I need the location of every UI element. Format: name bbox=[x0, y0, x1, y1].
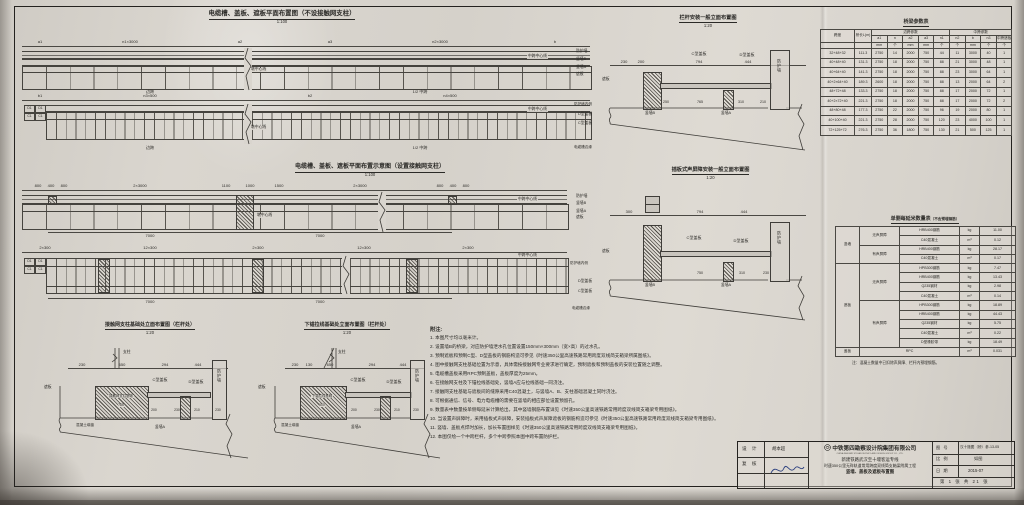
param-value: 14 bbox=[887, 49, 903, 59]
shield-label: 遮板 bbox=[44, 386, 52, 390]
note-item: 7. 接触网支柱基础与遮板间的缝隙采用C40混凝土，与竖墙A、B、支柱基础混凝土… bbox=[430, 388, 960, 397]
qty-row: 有声屏障HPB300钢筋kg18.89 bbox=[836, 301, 1016, 310]
dim-label: 2×3000 bbox=[133, 184, 146, 188]
reviewer-signature bbox=[768, 459, 806, 483]
date-label: 日 期 bbox=[936, 469, 949, 473]
param-value: 2000 bbox=[903, 68, 919, 78]
param-row: 40+2×72+40221.3275018200075088172000722 bbox=[821, 97, 1012, 107]
dim-label: 1100 bbox=[222, 184, 231, 188]
dim-label: 785 bbox=[118, 404, 124, 407]
param-value: 18 bbox=[887, 68, 903, 78]
side-label-wall-b: 竖墙B bbox=[576, 58, 586, 62]
qty-unit: m³ bbox=[960, 292, 980, 301]
param-value: 48+80+48 bbox=[821, 106, 855, 116]
cover-c-label: C型盖板 bbox=[687, 236, 702, 240]
dimension-line bbox=[22, 100, 590, 101]
plan-mid-scale: 1:100 bbox=[240, 173, 500, 177]
param-value: 750 bbox=[918, 68, 934, 78]
param-value: 2750 bbox=[872, 106, 888, 116]
dim-label: 130 bbox=[306, 363, 313, 367]
plan-top-scale: 1:100 bbox=[172, 20, 392, 24]
param-value: 40+100+40 bbox=[821, 116, 855, 126]
dim-label: 230 bbox=[79, 363, 86, 367]
param-value: 500 bbox=[965, 125, 981, 135]
dimension-line bbox=[22, 190, 567, 191]
post-foundation-hatch bbox=[48, 196, 57, 205]
param-value: 750 bbox=[918, 125, 934, 135]
param-value: 1800 bbox=[903, 125, 919, 135]
note-item: 8. 可根据通信、信号、电力电缆槽的需要在竖墙的相应部位设置预留孔。 bbox=[430, 397, 960, 406]
dim-label: 650 bbox=[119, 363, 126, 367]
param-value: 88 bbox=[934, 68, 950, 78]
dim-label: 230 bbox=[413, 409, 419, 412]
param-value: 750 bbox=[918, 116, 934, 126]
param-value: 189.3 bbox=[855, 77, 872, 87]
qty-unit: kg bbox=[960, 227, 980, 236]
qty-unit: kg bbox=[960, 245, 980, 254]
param-value: 48+72+48 bbox=[821, 87, 855, 97]
dim-label: 200 bbox=[351, 409, 357, 412]
qty-value: 28.17 bbox=[980, 245, 1016, 254]
dim-label: 230 bbox=[621, 60, 628, 64]
param-value: 2 bbox=[996, 97, 1012, 107]
foundation-label: 接触网支柱基础 bbox=[108, 395, 134, 398]
dim-label: 2×300 bbox=[39, 246, 50, 250]
qty-unit: kg bbox=[960, 310, 980, 319]
wall-a-label: 竖墙A bbox=[351, 426, 361, 430]
plate-type-cells: D1 D1 C1 C1 bbox=[24, 258, 46, 274]
pier-centerline-label: 墩中心线 bbox=[250, 68, 267, 72]
param-value: 2000 bbox=[965, 77, 981, 87]
post-foundation-hatch bbox=[98, 259, 110, 293]
param-value: 750 bbox=[918, 106, 934, 116]
title-block-divider bbox=[932, 454, 1014, 455]
side-label-guardwall-inner: 防护墙内侧 bbox=[574, 103, 592, 107]
qty-unit: kg bbox=[960, 282, 980, 291]
param-value: 2750 bbox=[872, 49, 888, 59]
dim-label: 230 bbox=[763, 272, 769, 276]
elev2-title: 插板式声屏障安装一般立面布置图 bbox=[618, 167, 803, 175]
side-label-trough-edge: 电缆槽边缘 bbox=[574, 146, 592, 150]
param-value: 2750 bbox=[872, 68, 888, 78]
param-value: 17 bbox=[950, 97, 966, 107]
param-value: 2000 bbox=[903, 106, 919, 116]
param-value: 750 bbox=[918, 77, 934, 87]
param-value: 19 bbox=[950, 106, 966, 116]
note-item: 1. 本图尺寸均以毫米计。 bbox=[430, 334, 960, 343]
dim-label: a3 bbox=[328, 40, 332, 44]
plate-cell: D1 bbox=[24, 258, 35, 266]
param-value: 133.3 bbox=[855, 87, 872, 97]
qty-material: C40混凝土 bbox=[900, 292, 960, 301]
shield-label: 遮板 bbox=[602, 78, 610, 82]
cover-d-label: D型盖板 bbox=[189, 380, 204, 384]
param-value: 22 bbox=[887, 106, 903, 116]
param-value: 2750 bbox=[872, 125, 888, 135]
param-value: 88 bbox=[934, 77, 950, 87]
param-value: 72 bbox=[981, 97, 997, 107]
param-value: 13 bbox=[950, 77, 966, 87]
param-value: 1 bbox=[996, 106, 1012, 116]
param-value: 2600 bbox=[872, 77, 888, 87]
param-value: 2000 bbox=[903, 87, 919, 97]
wall-a-hatch bbox=[380, 396, 391, 420]
dim-label: b bbox=[554, 40, 556, 44]
qty-material: HRB400钢筋 bbox=[900, 310, 960, 319]
param-value: 88 bbox=[934, 87, 950, 97]
dimension-line bbox=[22, 46, 590, 47]
param-value: 36 bbox=[887, 125, 903, 135]
param-value: 2000 bbox=[965, 106, 981, 116]
pier-centerline-label: 墩中心线 bbox=[256, 214, 273, 218]
cover-plate-band bbox=[22, 66, 592, 90]
qty-unit: m³ bbox=[960, 347, 980, 356]
dim-label: 2×3000 bbox=[353, 184, 366, 188]
param-value: 4000 bbox=[965, 116, 981, 126]
qty-material: Q235钢材 bbox=[900, 282, 960, 291]
qty-value: 0.14 bbox=[980, 292, 1016, 301]
shield-plate bbox=[660, 83, 772, 89]
dim-label: 7000 bbox=[316, 234, 325, 238]
note-item: 9. 数量表中数量按单侧每延米计算给出，其中竖墙钢筋布置详见《时速350公里高速… bbox=[430, 406, 960, 415]
break-symbol bbox=[342, 256, 350, 294]
param-value: 1 bbox=[996, 116, 1012, 126]
param-value: 11 bbox=[950, 49, 966, 59]
cover-d-label: D型盖板 bbox=[387, 380, 402, 384]
param-value: 120 bbox=[934, 116, 950, 126]
notes-block: 附注: 1. 本图尺寸均以毫米计。2. 设置墙B的桥梁，对应防护墙泄水孔位置设置… bbox=[430, 327, 960, 442]
detail1-scale: 1:20 bbox=[60, 331, 240, 335]
param-value: 1 bbox=[996, 125, 1012, 135]
span-label-side: 边跨 bbox=[146, 146, 154, 150]
plate-cell: C1 bbox=[35, 113, 46, 121]
param-value: 40+48+40 bbox=[821, 58, 855, 68]
param-value: 131.3 bbox=[855, 58, 872, 68]
bridge-parameter-table: 跨度桥长L(m)边跨参数中跨参数a1na2a3n1n2bn3中跨遮板mm个mmm… bbox=[820, 29, 1012, 136]
dim-label: 310 bbox=[738, 101, 744, 105]
plan-strip-mid-2: 2×300 12×300 2×300 12×300 2×300 D1 D1 C1… bbox=[22, 248, 567, 312]
qty-category: 无声屏障 bbox=[860, 264, 900, 301]
guardwall-label: 防护墙 bbox=[777, 231, 781, 245]
param-col-length: 桥长L(m) bbox=[855, 30, 872, 43]
break-symbol bbox=[378, 192, 386, 232]
dimension-line bbox=[48, 298, 452, 299]
qty-value: 44.43 bbox=[980, 310, 1016, 319]
dim-label: 800 bbox=[437, 184, 444, 188]
param-value: 750 bbox=[918, 97, 934, 107]
dim-label: n2×3000 bbox=[432, 40, 448, 44]
qty-unit: m³ bbox=[960, 236, 980, 245]
param-value: 17 bbox=[950, 87, 966, 97]
side-label-guardwall-inner: 防护墙内侧 bbox=[570, 262, 588, 266]
qty-unit: m³ bbox=[960, 329, 980, 338]
qty-part: 竖墙 bbox=[836, 227, 860, 264]
param-value: 21 bbox=[950, 58, 966, 68]
param-value: 18 bbox=[887, 97, 903, 107]
sheet-count: 第 1 张 共 21 张 bbox=[940, 480, 989, 484]
break-symbol bbox=[244, 104, 252, 144]
qty-material: HRB400钢筋 bbox=[900, 273, 960, 282]
param-value: 64 bbox=[981, 77, 997, 87]
side-label-guardwall: 防护墙 bbox=[576, 195, 587, 199]
wall-band bbox=[46, 105, 590, 112]
dim-label: 800 bbox=[35, 184, 42, 188]
dim-label: 200 bbox=[638, 60, 645, 64]
dim-label: 794 bbox=[696, 60, 703, 64]
company-name-en: CHINA RAILWAY SIYUAN SURVEY AND DESIGN G… bbox=[816, 452, 924, 455]
dim-label: 210 bbox=[394, 409, 400, 412]
band-split-line bbox=[23, 211, 568, 212]
cover-c-label: C型盖板 bbox=[153, 378, 168, 382]
guardwall-box: 防护墙 bbox=[770, 50, 790, 110]
param-value: 2750 bbox=[872, 87, 888, 97]
param-row: 48+72+48133.3275018200075088172000721 bbox=[821, 87, 1012, 97]
param-value: 221.3 bbox=[855, 116, 872, 126]
wall-a-hatch bbox=[723, 262, 734, 282]
param-value: 21 bbox=[950, 125, 966, 135]
title-block-divider bbox=[958, 442, 959, 477]
dimension-line bbox=[48, 232, 452, 233]
qty-value: 18.89 bbox=[980, 301, 1016, 310]
qty-unit: kg bbox=[960, 301, 980, 310]
param-value: 64 bbox=[981, 68, 997, 78]
side-label-plate-c: C型盖板 bbox=[578, 122, 592, 126]
param-value: 23 bbox=[950, 68, 966, 78]
param-value: 111.3 bbox=[855, 49, 872, 59]
dim-label: n1×3000 bbox=[122, 40, 138, 44]
side-label-shield: 遮板 bbox=[576, 73, 584, 77]
title-block: 设 计 复 核 胡本超 中铁第四勘察设计院集团有限公司 CHINA RAILWA… bbox=[737, 441, 1015, 489]
cover-d-label: D型盖板 bbox=[740, 53, 755, 57]
midspan-centerline-label: 中跨中心线 bbox=[517, 254, 538, 258]
post-foundation-hatch bbox=[252, 259, 264, 293]
param-value: 2750 bbox=[872, 97, 888, 107]
band-split-line bbox=[47, 266, 568, 267]
company-name: 中铁第四勘察设计院集团有限公司 bbox=[832, 446, 916, 452]
date-value: 2015-07 bbox=[968, 469, 983, 473]
detail1-title: 接触网支柱基础处立面布置图（栏杆处） bbox=[60, 322, 240, 330]
qty-row: 有声屏障HRB400钢筋kg28.17 bbox=[836, 245, 1016, 254]
cover-c-label: C型盖板 bbox=[351, 378, 366, 382]
param-value: 88 bbox=[934, 97, 950, 107]
qty-table-title-suffix: （不含预埋钢筋） bbox=[931, 217, 960, 221]
param-row: 72+125+72276.32750361800750130215001251 bbox=[821, 125, 1012, 135]
guardwall-band bbox=[22, 51, 590, 59]
qty-value: 11.00 bbox=[980, 227, 1016, 236]
param-value: 44 bbox=[934, 49, 950, 59]
param-value: 2000 bbox=[965, 97, 981, 107]
band-split-line bbox=[23, 72, 591, 73]
qty-unit: kg bbox=[960, 338, 980, 347]
dim-label: 230 bbox=[174, 409, 180, 412]
qty-value: 5.75 bbox=[980, 319, 1016, 328]
param-value: 141.3 bbox=[855, 68, 872, 78]
param-value: 1 bbox=[996, 87, 1012, 97]
dim-label: 750 bbox=[697, 272, 703, 276]
side-label-plate-d: D型盖板 bbox=[578, 280, 592, 284]
param-row: 40+100+40221.327502820007501202340001001 bbox=[821, 116, 1012, 126]
param-value: 750 bbox=[918, 49, 934, 59]
dim-label: 7000 bbox=[316, 300, 325, 304]
dim-label: 765 bbox=[697, 101, 703, 105]
param-value: 3000 bbox=[965, 49, 981, 59]
title-block-divider bbox=[932, 477, 1014, 478]
qty-category: 无声屏障 bbox=[860, 227, 900, 246]
dim-label: 2×300 bbox=[252, 246, 263, 250]
dim-label: 444 bbox=[400, 363, 407, 367]
sheet-title: 竖墙、盖板及遮板布置图 bbox=[810, 469, 930, 475]
dim-label: 210 bbox=[760, 101, 766, 105]
param-value: 3000 bbox=[965, 58, 981, 68]
plate-cell: D1 bbox=[24, 105, 35, 113]
param-value: 2000 bbox=[965, 87, 981, 97]
side-label-wall-a: 竖墙A bbox=[576, 66, 586, 70]
cable-trough-band bbox=[46, 258, 569, 294]
wall-a-label: 竖墙A bbox=[721, 284, 731, 288]
qty-value: 2.98 bbox=[980, 282, 1016, 291]
dim-label: 2×300 bbox=[462, 246, 473, 250]
cover-plate-band bbox=[22, 204, 569, 230]
cover-c-label: C型盖板 bbox=[692, 52, 707, 56]
dimension-line bbox=[22, 252, 567, 253]
side-label-shield: 遮板 bbox=[576, 216, 584, 220]
param-value: 40+2×72+40 bbox=[821, 97, 855, 107]
guardwall-box: 防护墙 bbox=[770, 222, 790, 282]
note-item: 3. 预制遮板和预制C型、D型盖板的钢筋构造可参见《时速350公里高速铁路常用跨… bbox=[430, 352, 960, 361]
band-split-line bbox=[47, 119, 591, 120]
param-value: 48 bbox=[981, 58, 997, 68]
project-line2: 时速350公里无砟轨道常用跨度双线简支箱梁附属工程 bbox=[810, 463, 930, 469]
param-value: 1 bbox=[996, 49, 1012, 59]
side-label-plate-d: D型盖板 bbox=[578, 113, 592, 117]
qty-unit: kg bbox=[960, 319, 980, 328]
dim-label: 1000 bbox=[246, 184, 255, 188]
dim-label: 230 bbox=[215, 409, 221, 412]
elev1-title: 栏杆安装一般立面布置图 bbox=[628, 15, 788, 23]
note-item: 4. 图中接触网支柱基础位置为示意，具体需按接触网专业要求进行确定，预制遮板和预… bbox=[430, 361, 960, 370]
scanned-engineering-drawing: { "colors": {"paper":"#dad6cf","ink":"#2… bbox=[0, 0, 1024, 505]
guardwall-label: 防护墙 bbox=[777, 59, 781, 73]
note-item: 5. 电缆槽盖板采用RPC预制盖板，盖板厚度为25mm。 bbox=[430, 370, 960, 379]
detail2-scale: 1:20 bbox=[262, 331, 432, 335]
dim-label: 230 bbox=[374, 409, 380, 412]
qty-table-title-text: 单侧每延米数量表 bbox=[891, 216, 931, 222]
dim-label: a2 bbox=[238, 40, 242, 44]
param-value: 2750 bbox=[872, 116, 888, 126]
qty-table-title: 单侧每延米数量表（不含预埋钢筋） bbox=[840, 216, 1010, 224]
param-col-span: 跨度 bbox=[821, 30, 855, 43]
param-value: 130 bbox=[934, 125, 950, 135]
qty-unit: kg bbox=[960, 264, 980, 273]
dim-label: 400 bbox=[450, 184, 457, 188]
param-value: 750 bbox=[918, 87, 934, 97]
plate-type-cells: D1 D1 C1 C1 bbox=[24, 105, 46, 121]
dim-label: b2 bbox=[308, 94, 312, 98]
mast-label: 支柱 bbox=[338, 351, 346, 355]
company-logo-icon bbox=[824, 444, 831, 451]
note-item: 6. 在接触网支柱及下锚拉线基础处，竖墙A应与拉线基础一同浇注。 bbox=[430, 379, 960, 388]
post-foundation-hatch bbox=[448, 196, 457, 205]
dim-label: 444 bbox=[745, 60, 752, 64]
detail2-title: 下锚拉线基础处立面布置图（栏杆处） bbox=[262, 322, 432, 330]
param-value: 18 bbox=[887, 77, 903, 87]
wall-a-hatch bbox=[180, 396, 191, 420]
pier-centerline-label: 墩中心线 bbox=[250, 126, 267, 130]
shield-label: 遮板 bbox=[258, 386, 266, 390]
note-item: 11. 竖墙、盖板点焊时加长，加长布置图样见《时速350公里高速铁路常用跨度双线… bbox=[430, 424, 960, 433]
param-row: 40+48+40131.3275018200075088213000481 bbox=[821, 58, 1012, 68]
dim-label: 12×300 bbox=[143, 246, 156, 250]
dim-label: a1 bbox=[38, 40, 42, 44]
qty-unit: m³ bbox=[960, 254, 980, 263]
qty-material: C40混凝土 bbox=[900, 236, 960, 245]
concrete-seal-label: 混凝土填缝 bbox=[76, 424, 94, 428]
shield-plate bbox=[147, 392, 211, 398]
concrete-seal-label: 混凝土填缝 bbox=[281, 424, 299, 428]
scale-label: 比 例 bbox=[936, 457, 949, 461]
qty-material: HRB400钢筋 bbox=[900, 227, 960, 236]
shield-label: 遮板 bbox=[602, 250, 610, 254]
dim-label: 1500 bbox=[275, 184, 284, 188]
param-value: 276.3 bbox=[855, 125, 872, 135]
param-value: 100 bbox=[981, 116, 997, 126]
qty-value: 7.47 bbox=[980, 264, 1016, 273]
dim-label: 300 bbox=[626, 210, 633, 214]
param-value: 750 bbox=[918, 58, 934, 68]
wall-band bbox=[22, 59, 590, 66]
wall-a-label: 竖墙A bbox=[721, 112, 731, 116]
qty-row: 竖墙无声屏障HRB400钢筋kg11.00 bbox=[836, 227, 1016, 236]
qty-value: 18.49 bbox=[980, 338, 1016, 347]
param-value: 80 bbox=[981, 106, 997, 116]
plan-strip-top-2: b1 n3×500 b2 n4×500 D1 D1 C1 C1 墩中心线 中跨中… bbox=[22, 96, 590, 154]
title-block-divider bbox=[808, 442, 809, 488]
title-block-divider bbox=[738, 457, 808, 458]
dim-label: 210 bbox=[194, 409, 200, 412]
param-value: 1 bbox=[996, 58, 1012, 68]
param-value: 3000 bbox=[965, 68, 981, 78]
wall-b-label: 竖墙B bbox=[645, 284, 655, 288]
dim-label: 444 bbox=[195, 363, 202, 367]
dim-label: 250 bbox=[663, 101, 669, 105]
param-row: 40+64+40141.3275018200075088233000641 bbox=[821, 68, 1012, 78]
qty-material: HPB300钢筋 bbox=[900, 301, 960, 310]
qty-material: HPB300钢筋 bbox=[900, 264, 960, 273]
param-value: 18 bbox=[887, 87, 903, 97]
dim-label: 230 bbox=[292, 363, 299, 367]
foundation-label: 下锚拉线基础 bbox=[311, 395, 333, 398]
qty-material: HRB400钢筋 bbox=[900, 245, 960, 254]
notes-list: 1. 本图尺寸均以毫米计。2. 设置墙B的桥梁，对应防护墙泄水孔位置设置150m… bbox=[430, 334, 960, 441]
dim-label: 310 bbox=[739, 272, 745, 276]
param-row: 32+48+32111.3275014200075044113000401 bbox=[821, 49, 1012, 59]
dim-label: 200 bbox=[151, 409, 157, 412]
param-value: 72+125+72 bbox=[821, 125, 855, 135]
param-value: 40+2×64+40 bbox=[821, 77, 855, 87]
dim-label: 800 bbox=[61, 184, 68, 188]
cable-trough-band bbox=[46, 112, 592, 140]
dim-label: 650 bbox=[327, 363, 334, 367]
plate-cell: D1 bbox=[35, 105, 46, 113]
qty-category: 有声屏障 bbox=[860, 245, 900, 264]
dimension-line bbox=[285, 368, 425, 369]
wall-a-hatch bbox=[723, 90, 734, 110]
side-label-wall-b: 竖墙B bbox=[576, 202, 586, 206]
param-value: 28 bbox=[887, 116, 903, 126]
company-block: 中铁第四勘察设计院集团有限公司 CHINA RAILWAY SIYUAN SUR… bbox=[810, 444, 930, 475]
dim-label: 294 bbox=[162, 363, 169, 367]
plate-cell: D1 bbox=[35, 258, 46, 266]
